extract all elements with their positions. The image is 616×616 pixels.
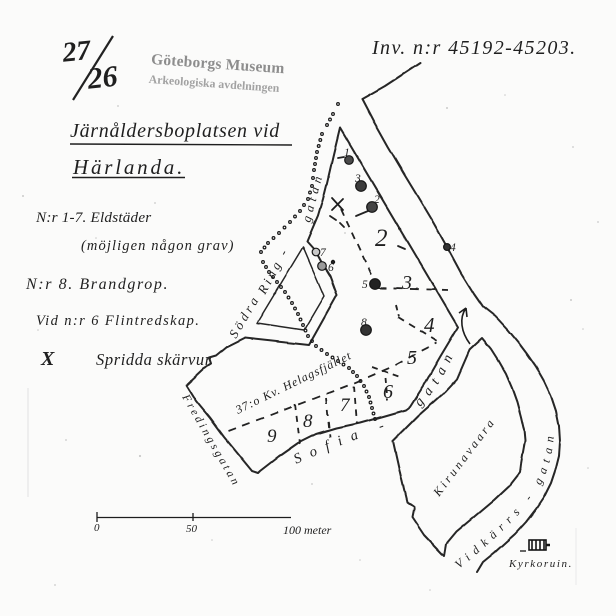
svg-text:5: 5 <box>362 279 368 291</box>
svg-text:6: 6 <box>328 262 334 274</box>
svg-text:2: 2 <box>374 194 380 206</box>
svg-text:N:r 1-7. Eldstäder: N:r 1-7. Eldstäder <box>35 209 151 226</box>
svg-text:7: 7 <box>340 395 351 416</box>
svg-text:5: 5 <box>407 347 417 369</box>
svg-text:Inv. n:r 45192-45203.: Inv. n:r 45192-45203. <box>371 37 577 59</box>
svg-text:Vid n:r 6 Flintredskap.: Vid n:r 6 Flintredskap. <box>36 313 200 329</box>
svg-text:50: 50 <box>186 523 198 535</box>
svg-text:Järnåldersboplatsen vid: Järnåldersboplatsen vid <box>70 120 280 142</box>
svg-text:8: 8 <box>303 411 313 432</box>
svg-text:4: 4 <box>424 313 435 337</box>
svg-text:Kyrkoruin.: Kyrkoruin. <box>508 558 573 570</box>
svg-text:100 meter: 100 meter <box>283 523 332 537</box>
svg-text:X: X <box>40 348 55 370</box>
svg-text:3: 3 <box>354 173 361 185</box>
svg-text:1: 1 <box>344 147 350 159</box>
svg-text:2: 2 <box>375 225 388 252</box>
svg-text:Spridda skärvur: Spridda skärvur <box>96 350 212 369</box>
svg-text:4: 4 <box>450 242 456 254</box>
svg-text:8: 8 <box>361 317 367 329</box>
svg-text:(möjligen någon grav): (möjligen någon grav) <box>81 238 235 254</box>
svg-text:Härlanda.: Härlanda. <box>72 155 185 179</box>
svg-text:0: 0 <box>94 522 100 534</box>
svg-text:N:r 8. Brandgrop.: N:r 8. Brandgrop. <box>25 276 169 293</box>
svg-text:9: 9 <box>267 426 277 447</box>
svg-text:6: 6 <box>383 381 393 403</box>
svg-text:3: 3 <box>401 272 412 294</box>
svg-text:26: 26 <box>85 60 119 96</box>
